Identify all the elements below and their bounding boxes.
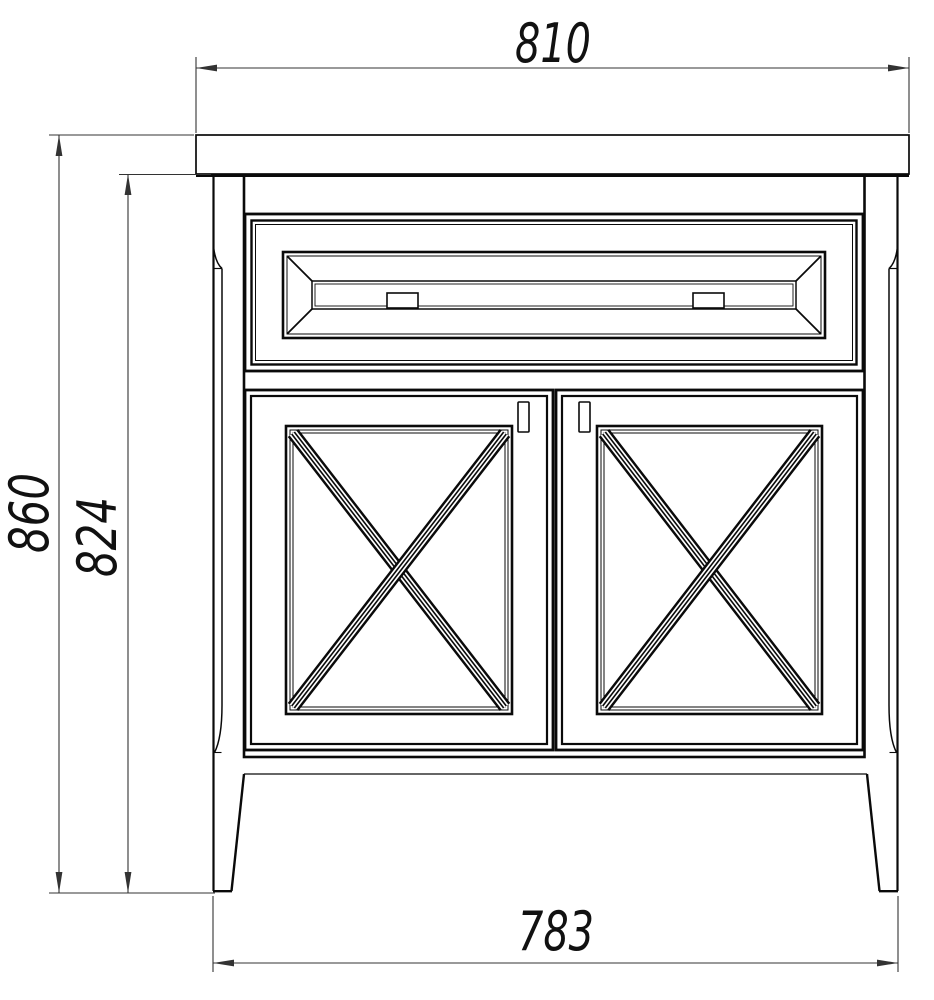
drawer-handle-left [387, 293, 418, 308]
countertop-slab [196, 135, 909, 174]
dim-810-label: 810 [515, 12, 591, 75]
door-right [556, 390, 863, 750]
dimension-body-height: 824 [66, 174, 211, 893]
dim-810-arrow-left [196, 65, 217, 72]
dim-860-label: 860 [0, 473, 61, 553]
dim-783-label: 783 [518, 900, 594, 963]
dim-810-arrow-right [888, 65, 909, 72]
dimension-top-width: 810 [196, 12, 909, 133]
door-handle-right [579, 402, 590, 432]
technical-drawing-canvas: 810 860 824 783 [0, 0, 934, 1000]
left-leg-notch-curve [214, 247, 223, 269]
dimension-bottom-width: 783 [213, 896, 898, 972]
drawer-outer-frame [245, 214, 863, 371]
drawer-front [245, 214, 863, 371]
dim-783-arrow-left [213, 960, 234, 967]
dim-824-arrow-bottom [125, 872, 132, 893]
door-handle-left [518, 402, 529, 432]
door-left [245, 390, 553, 750]
dim-860-arrow-bottom [56, 872, 63, 893]
dim-783-arrow-right [877, 960, 898, 967]
dim-860-arrow-top [56, 135, 63, 156]
dim-824-arrow-top [125, 174, 132, 195]
countertop [196, 135, 909, 176]
cabinet-elevation-drawing: 810 860 824 783 [0, 0, 934, 1000]
right-leg-ankle-curve [889, 705, 897, 753]
left-leg-inner-taper [232, 774, 245, 891]
left-leg-ankle-curve [215, 705, 223, 753]
right-leg-inner-taper [867, 774, 880, 891]
left-leg [213, 176, 244, 891]
drawer-handle-right [693, 293, 724, 308]
dim-824-label: 824 [66, 497, 129, 577]
right-leg-notch-curve [889, 247, 898, 269]
right-leg [867, 176, 898, 891]
